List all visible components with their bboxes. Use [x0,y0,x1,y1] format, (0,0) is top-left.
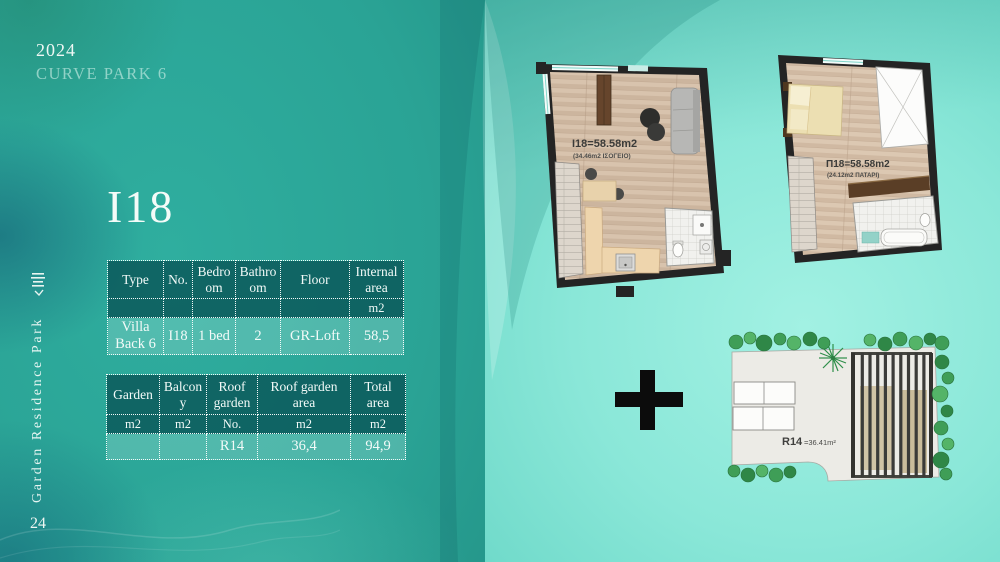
spec-units-cell [164,299,193,318]
spec-units-cell: m2 [350,299,404,318]
ground-floor-plan: I18=58.58m2 (34.46m2 ΙΣΟΓΕΙΟ) [528,42,743,300]
bathroom [665,208,714,266]
roof-garden-label: R14 [782,436,803,448]
loft-bathroom [853,196,938,252]
loft-stairs [788,156,817,252]
area-units-cell: m2 [107,415,160,434]
area-header-roof-garden-area: Roof garden area [258,375,351,415]
spec-value-type: Villa Back 6 [108,318,164,355]
bed [783,82,843,137]
spec-header-internal-area: Internal area [350,261,404,299]
spec-data-row: Villa Back 6 I18 1 bed 2 GR-Loft 58,5 [108,318,404,355]
area-data-row: R14 36,4 94,9 [107,434,406,460]
area-table: Garden Balcony Roof garden Roof garden a… [106,374,406,460]
page-number: 24 [30,515,46,533]
area-units-cell: No. [207,415,258,434]
skylight-void [876,67,928,148]
spec-units-cell [236,299,281,318]
loft-sublabel: (24.12m2 ΠΑΤΑΡΙ) [827,172,879,179]
stairs [555,162,583,278]
area-value-total-area: 94,9 [351,434,406,460]
spec-value-internal-area: 58,5 [350,318,404,355]
roof-garden-area-label: =36.41m² [804,438,836,447]
area-header-balcony: Balcony [160,375,207,415]
unit-title: I18 [107,184,174,230]
spec-header-type: Type [108,261,164,299]
area-units-cell: m2 [160,415,207,434]
spec-value-bedroom: 1 bed [193,318,236,355]
slide: 2024 CURVE PARK 6 Garden Residence Park … [0,0,1000,562]
year-label: 2024 [36,40,76,61]
spec-value-floor: GR-Loft [281,318,350,355]
ground-floor-label: I18=58.58m2 [572,138,637,150]
spec-value-bathroom: 2 [236,318,281,355]
spec-units-row: m2 [108,299,404,318]
brand-logo-icon [30,270,48,296]
spec-header-no: No. [164,261,193,299]
area-value-garden [107,434,160,460]
spec-header-floor: Floor [281,261,350,299]
ground-floor-sublabel: (34.46m2 ΙΣΟΓΕΙΟ) [573,153,631,160]
loft-window [823,61,863,63]
brand-vertical-text: Garden Residence Park [30,297,46,503]
spec-units-cell [281,299,350,318]
area-value-balcony [160,434,207,460]
spec-table: Type No. Bedroom Bathroom Floor Internal… [107,260,404,355]
spec-header-row: Type No. Bedroom Bathroom Floor Internal… [108,261,404,299]
wardrobe [597,75,611,125]
area-header-row: Garden Balcony Roof garden Roof garden a… [107,375,406,415]
spec-value-no: I18 [164,318,193,355]
area-value-roof-garden-area: 36,4 [258,434,351,460]
loft-plan: Π18=58.58m2 (24.12m2 ΠΑΤΑΡΙ) [763,46,968,291]
spec-header-bedroom: Bedroom [193,261,236,299]
area-units-row: m2 m2 No. m2 m2 [107,415,406,434]
area-units-cell: m2 [351,415,406,434]
area-header-total-area: Total area [351,375,406,415]
area-header-garden: Garden [107,375,160,415]
project-name: CURVE PARK 6 [36,64,168,84]
area-header-roof-garden: Roof garden [207,375,258,415]
decorative-waves [0,470,340,562]
sofa [671,88,700,154]
spec-units-cell [193,299,236,318]
plus-icon [613,368,683,432]
spec-units-cell [108,299,164,318]
area-units-cell: m2 [258,415,351,434]
spec-header-bathroom: Bathroom [236,261,281,299]
loft-label: Π18=58.58m2 [826,159,890,170]
area-value-roof-garden: R14 [207,434,258,460]
roof-garden-plan: R14 =36.41m² [720,316,955,488]
